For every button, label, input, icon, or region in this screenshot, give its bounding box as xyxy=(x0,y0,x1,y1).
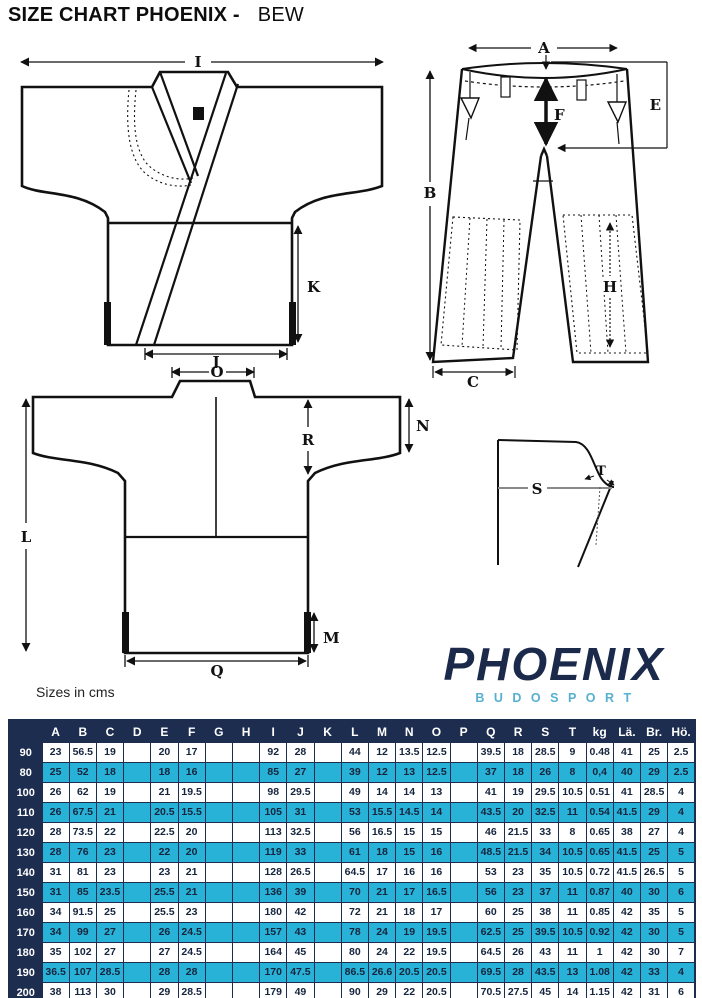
size-row-label: 150 xyxy=(9,883,42,903)
table-cell: 42 xyxy=(287,903,314,923)
table-cell: 91.5 xyxy=(69,903,96,923)
table-cell: 1.15 xyxy=(586,983,613,998)
table-cell: 23 xyxy=(96,863,123,883)
table-cell: 80 xyxy=(341,943,368,963)
table-cell xyxy=(232,963,259,983)
table-cell: 14 xyxy=(423,803,450,823)
column-header: K xyxy=(314,720,341,743)
table-cell: 11 xyxy=(559,943,586,963)
table-cell: 29 xyxy=(368,983,395,998)
table-cell: 34 xyxy=(42,923,69,943)
table-cell: 33 xyxy=(287,843,314,863)
table-cell xyxy=(232,843,259,863)
table-cell xyxy=(450,763,477,783)
table-cell xyxy=(124,783,151,803)
table-cell xyxy=(450,883,477,903)
table-cell: 99 xyxy=(69,923,96,943)
table-cell xyxy=(205,763,232,783)
table-cell: 0,4 xyxy=(586,763,613,783)
table-cell: 19.5 xyxy=(423,943,450,963)
table-cell: 23 xyxy=(96,843,123,863)
table-cell: 14 xyxy=(368,783,395,803)
table-cell: 20.5 xyxy=(423,983,450,998)
table-cell: 43.5 xyxy=(532,963,559,983)
column-header: H xyxy=(232,720,259,743)
table-cell: 113 xyxy=(260,823,287,843)
column-header: C xyxy=(96,720,123,743)
table-cell: 19 xyxy=(96,743,123,763)
table-row: 1603491.52525.5231804272211817602538110.… xyxy=(9,903,695,923)
table-cell: 21 xyxy=(368,883,395,903)
table-cell: 27.5 xyxy=(504,983,531,998)
table-cell xyxy=(314,783,341,803)
table-row: 1703499272624.51574378241919.562.52539.5… xyxy=(9,923,695,943)
table-cell xyxy=(124,923,151,943)
table-cell: 21 xyxy=(178,863,205,883)
table-cell xyxy=(450,903,477,923)
table-cell: 39.5 xyxy=(532,923,559,943)
table-cell: 27 xyxy=(640,823,667,843)
measure-label-k: K xyxy=(307,278,321,296)
table-cell: 107 xyxy=(69,963,96,983)
column-header: Br. xyxy=(640,720,667,743)
table-cell: 41 xyxy=(613,743,640,763)
table-cell xyxy=(124,963,151,983)
table-cell: 19.5 xyxy=(423,923,450,943)
table-body: 902356.51920179228441213.512.539.51828.5… xyxy=(9,743,695,998)
brand-logo: PHOENIX BUDOSPORT xyxy=(408,641,700,705)
table-cell: 29 xyxy=(151,983,178,998)
table-cell xyxy=(124,983,151,998)
table-row: 802552181816852739121312.537182680,44029… xyxy=(9,763,695,783)
table-cell xyxy=(450,843,477,863)
table-cell: 29 xyxy=(640,803,667,823)
table-cell: 41 xyxy=(477,783,504,803)
table-cell xyxy=(314,923,341,943)
table-cell: 42 xyxy=(613,923,640,943)
table-cell: 92 xyxy=(260,743,287,763)
table-cell xyxy=(124,943,151,963)
table-row: 150318523.525.5211363970211716.556233711… xyxy=(9,883,695,903)
table-cell: 38 xyxy=(42,983,69,998)
table-cell: 30 xyxy=(640,943,667,963)
table-cell: 31 xyxy=(640,983,667,998)
table-cell: 61 xyxy=(341,843,368,863)
measure-label-t: T xyxy=(596,464,606,479)
table-cell: 17 xyxy=(396,883,423,903)
table-cell: 62 xyxy=(69,783,96,803)
table-row: 1002662192119.59829.549141413411929.510.… xyxy=(9,783,695,803)
table-cell: 13 xyxy=(559,963,586,983)
table-cell xyxy=(205,783,232,803)
table-cell: 136 xyxy=(260,883,287,903)
table-cell: 20.5 xyxy=(151,803,178,823)
table-cell: 4 xyxy=(668,803,695,823)
table-cell: 28.5 xyxy=(532,743,559,763)
table-cell: 15.5 xyxy=(368,803,395,823)
table-cell: 56.5 xyxy=(69,743,96,763)
table-cell: 41.5 xyxy=(613,843,640,863)
table-cell: 28 xyxy=(287,743,314,763)
table-cell: 21.5 xyxy=(504,823,531,843)
table-cell: 14.5 xyxy=(396,803,423,823)
table-cell xyxy=(205,863,232,883)
table-cell: 32.5 xyxy=(287,823,314,843)
table-cell: 56 xyxy=(477,883,504,903)
header-row: ABCDEFGHIJKLMNOPQRSTkgLä.Br.Hö. xyxy=(9,720,695,743)
table-cell: 16 xyxy=(178,763,205,783)
table-cell xyxy=(314,883,341,903)
table-cell: 15.5 xyxy=(178,803,205,823)
table-cell xyxy=(314,903,341,923)
table-cell: 12 xyxy=(368,763,395,783)
table-cell: 15 xyxy=(396,843,423,863)
table-cell: 23 xyxy=(504,863,531,883)
measure-label-r: R xyxy=(302,431,315,449)
table-cell: 12 xyxy=(368,743,395,763)
column-header: A xyxy=(42,720,69,743)
table-cell: 27 xyxy=(151,943,178,963)
table-cell: 28 xyxy=(42,843,69,863)
table-cell xyxy=(232,923,259,943)
table-row: 140318123232112826.564.517161653233510.5… xyxy=(9,863,695,883)
table-cell: 29.5 xyxy=(532,783,559,803)
table-cell: 60 xyxy=(477,903,504,923)
size-row-label: 140 xyxy=(9,863,42,883)
table-cell: 26 xyxy=(504,943,531,963)
table-cell: 70 xyxy=(341,883,368,903)
table-cell: 25 xyxy=(96,903,123,923)
column-header: S xyxy=(532,720,559,743)
size-row-label: 190 xyxy=(9,963,42,983)
table-cell xyxy=(314,803,341,823)
brand-subtitle: BUDOSPORT xyxy=(416,691,700,705)
table-cell: 15 xyxy=(423,823,450,843)
table-cell: 38 xyxy=(532,903,559,923)
table-cell: 26 xyxy=(532,763,559,783)
measure-label-l: L xyxy=(21,528,32,546)
column-header: F xyxy=(178,720,205,743)
column-header: kg xyxy=(586,720,613,743)
table-cell: 43 xyxy=(532,943,559,963)
table-cell: 78 xyxy=(341,923,368,943)
table-cell: 17 xyxy=(178,743,205,763)
table-row: 902356.51920179228441213.512.539.51828.5… xyxy=(9,743,695,763)
table-cell: 62.5 xyxy=(477,923,504,943)
table-cell: 28.5 xyxy=(96,963,123,983)
table-cell: 4 xyxy=(668,963,695,983)
table-cell: 35 xyxy=(532,863,559,883)
table-cell: 16.5 xyxy=(423,883,450,903)
sizes-note: Sizes in cms xyxy=(36,684,115,700)
table-cell: 26.5 xyxy=(287,863,314,883)
table-cell xyxy=(232,903,259,923)
measure-label-c: C xyxy=(467,373,479,390)
table-cell: 28 xyxy=(504,963,531,983)
column-header: T xyxy=(559,720,586,743)
column-header xyxy=(9,720,42,743)
table-cell: 24 xyxy=(368,943,395,963)
table-cell: 70.5 xyxy=(477,983,504,998)
table-cell: 23 xyxy=(178,903,205,923)
column-header: O xyxy=(423,720,450,743)
table-cell: 20.5 xyxy=(423,963,450,983)
table-cell: 27 xyxy=(287,763,314,783)
table-cell: 25 xyxy=(640,743,667,763)
table-cell xyxy=(450,863,477,883)
table-cell: 13 xyxy=(396,763,423,783)
table-cell: 47.5 xyxy=(287,963,314,983)
table-row: 20038113302928.51794990292220.570.527.54… xyxy=(9,983,695,998)
table-cell: 11 xyxy=(559,883,586,903)
table-cell: 10.5 xyxy=(559,783,586,803)
table-cell xyxy=(450,823,477,843)
table-cell: 43 xyxy=(287,923,314,943)
table-cell: 42 xyxy=(613,943,640,963)
table-row: 19036.510728.5282817047.586.526.620.520.… xyxy=(9,963,695,983)
table-cell: 21 xyxy=(96,803,123,823)
table-cell: 86.5 xyxy=(341,963,368,983)
size-row-label: 80 xyxy=(9,763,42,783)
table-cell xyxy=(314,743,341,763)
table-cell xyxy=(450,963,477,983)
table-cell: 39 xyxy=(341,763,368,783)
table-cell: 45 xyxy=(532,983,559,998)
size-row-label: 90 xyxy=(9,743,42,763)
table-cell: 0.48 xyxy=(586,743,613,763)
table-cell: 41.5 xyxy=(613,863,640,883)
table-cell: 19 xyxy=(96,783,123,803)
size-row-label: 160 xyxy=(9,903,42,923)
table-cell: 16.5 xyxy=(368,823,395,843)
table-cell: 33 xyxy=(532,823,559,843)
table-cell: 5 xyxy=(668,903,695,923)
table-cell: 102 xyxy=(69,943,96,963)
table-cell: 24.5 xyxy=(178,923,205,943)
column-header: P xyxy=(450,720,477,743)
table-cell: 24.5 xyxy=(178,943,205,963)
table-cell: 31 xyxy=(287,803,314,823)
table-cell: 16 xyxy=(423,843,450,863)
table-cell xyxy=(124,743,151,763)
table-cell xyxy=(314,763,341,783)
table-cell: 90 xyxy=(341,983,368,998)
table-cell: 32.5 xyxy=(532,803,559,823)
table-cell: 7 xyxy=(668,943,695,963)
table-cell xyxy=(232,783,259,803)
table-cell: 28 xyxy=(151,963,178,983)
table-cell: 23.5 xyxy=(96,883,123,903)
table-cell: 53 xyxy=(477,863,504,883)
table-cell: 81 xyxy=(69,863,96,883)
measure-label-q: Q xyxy=(210,662,223,680)
table-cell: 0.85 xyxy=(586,903,613,923)
size-row-label: 100 xyxy=(9,783,42,803)
table-cell: 64.5 xyxy=(341,863,368,883)
table-cell xyxy=(205,963,232,983)
table-cell: 157 xyxy=(260,923,287,943)
table-cell xyxy=(314,943,341,963)
measure-label-b: B xyxy=(424,184,437,202)
table-cell: 26 xyxy=(151,923,178,943)
table-cell: 4 xyxy=(668,823,695,843)
table-cell xyxy=(205,743,232,763)
table-cell xyxy=(314,843,341,863)
table-cell xyxy=(124,863,151,883)
table-cell: 25 xyxy=(640,843,667,863)
size-row-label: 130 xyxy=(9,843,42,863)
table-cell: 30 xyxy=(96,983,123,998)
size-row-label: 170 xyxy=(9,923,42,943)
table-cell: 31 xyxy=(42,883,69,903)
page-title: SIZE CHART PHOENIX -BEW xyxy=(8,4,304,27)
table-cell: 11 xyxy=(559,803,586,823)
size-chart-page: SIZE CHART PHOENIX -BEW xyxy=(0,0,702,998)
table-cell: 40 xyxy=(613,883,640,903)
table-cell: 18 xyxy=(504,763,531,783)
table-cell: 33 xyxy=(640,963,667,983)
table-cell: 14 xyxy=(396,783,423,803)
table-cell: 85 xyxy=(260,763,287,783)
table-cell: 28.5 xyxy=(178,983,205,998)
column-header: Q xyxy=(477,720,504,743)
table-cell: 49 xyxy=(341,783,368,803)
table-cell: 18 xyxy=(396,903,423,923)
table-cell: 0.92 xyxy=(586,923,613,943)
table-cell: 67.5 xyxy=(69,803,96,823)
table-cell: 164 xyxy=(260,943,287,963)
table-cell: 22 xyxy=(396,943,423,963)
table-cell: 2.5 xyxy=(668,743,695,763)
table-row: 1202873.52222.52011332.55616.515154621.5… xyxy=(9,823,695,843)
table-cell xyxy=(314,863,341,883)
table-cell: 42 xyxy=(613,983,640,998)
table-cell: 4 xyxy=(668,783,695,803)
table-cell: 22 xyxy=(396,983,423,998)
column-header: N xyxy=(396,720,423,743)
table-cell: 26.5 xyxy=(640,863,667,883)
table-cell: 17 xyxy=(368,863,395,883)
table-cell: 20 xyxy=(151,743,178,763)
measure-label-s: S xyxy=(532,480,543,498)
table-cell: 1.08 xyxy=(586,963,613,983)
table-cell: 26.6 xyxy=(368,963,395,983)
table-cell: 64.5 xyxy=(477,943,504,963)
table-cell: 6 xyxy=(668,883,695,903)
table-cell: 19 xyxy=(504,783,531,803)
table-cell xyxy=(124,883,151,903)
table-cell: 20 xyxy=(504,803,531,823)
table-cell: 19 xyxy=(396,923,423,943)
table-cell: 25 xyxy=(504,923,531,943)
table-cell xyxy=(232,743,259,763)
table-cell: 170 xyxy=(260,963,287,983)
table-cell: 10.5 xyxy=(559,923,586,943)
table-cell: 20.5 xyxy=(396,963,423,983)
column-header: D xyxy=(124,720,151,743)
table-cell: 17 xyxy=(423,903,450,923)
table-cell: 23 xyxy=(42,743,69,763)
table-cell: 13 xyxy=(423,783,450,803)
table-cell: 0.54 xyxy=(586,803,613,823)
table-cell: 128 xyxy=(260,863,287,883)
table-cell: 22.5 xyxy=(151,823,178,843)
table-cell: 11 xyxy=(559,903,586,923)
table-cell: 0.65 xyxy=(586,843,613,863)
table-cell: 22 xyxy=(151,843,178,863)
table-cell xyxy=(205,923,232,943)
column-header: J xyxy=(287,720,314,743)
table-cell: 0.65 xyxy=(586,823,613,843)
table-cell: 16 xyxy=(423,863,450,883)
brand-patch xyxy=(193,107,204,120)
table-cell xyxy=(232,883,259,903)
table-cell: 25.5 xyxy=(151,883,178,903)
table-cell: 56 xyxy=(341,823,368,843)
table-cell: 10.5 xyxy=(559,863,586,883)
brand-name: PHOENIX xyxy=(408,641,700,687)
table-cell: 85 xyxy=(69,883,96,903)
column-header: Hö. xyxy=(668,720,695,743)
column-header: R xyxy=(504,720,531,743)
table-cell: 34 xyxy=(532,843,559,863)
table-cell xyxy=(232,943,259,963)
table-cell: 45 xyxy=(287,943,314,963)
table-cell: 18 xyxy=(96,763,123,783)
table-cell: 113 xyxy=(69,983,96,998)
table-cell: 21 xyxy=(368,903,395,923)
table-cell: 41 xyxy=(613,783,640,803)
table-cell: 29 xyxy=(640,763,667,783)
table-row: 18035102272724.51644580242219.564.526431… xyxy=(9,943,695,963)
table-cell: 9 xyxy=(559,743,586,763)
table-cell: 12.5 xyxy=(423,743,450,763)
table-cell: 21 xyxy=(151,783,178,803)
column-header: I xyxy=(260,720,287,743)
table-cell: 37 xyxy=(532,883,559,903)
table-cell xyxy=(450,743,477,763)
measure-label-f: F xyxy=(554,106,565,124)
table-cell: 0.87 xyxy=(586,883,613,903)
column-header: B xyxy=(69,720,96,743)
table-cell: 28 xyxy=(178,963,205,983)
title-main: SIZE CHART PHOENIX - xyxy=(8,4,240,26)
table-cell: 6 xyxy=(668,983,695,998)
table-cell: 0.72 xyxy=(586,863,613,883)
table-cell xyxy=(124,903,151,923)
table-cell xyxy=(232,823,259,843)
table-cell: 25 xyxy=(504,903,531,923)
table-cell: 44 xyxy=(341,743,368,763)
measure-label-m: M xyxy=(323,629,340,647)
table-cell: 53 xyxy=(341,803,368,823)
table-cell xyxy=(450,783,477,803)
table-cell xyxy=(232,763,259,783)
table-cell: 23 xyxy=(504,883,531,903)
table-cell: 15 xyxy=(396,823,423,843)
table-cell: 5 xyxy=(668,923,695,943)
table-cell xyxy=(450,923,477,943)
table-cell: 30 xyxy=(640,883,667,903)
table-cell xyxy=(232,863,259,883)
column-header: G xyxy=(205,720,232,743)
table-cell: 39 xyxy=(287,883,314,903)
table-cell: 12.5 xyxy=(423,763,450,783)
table-cell: 16 xyxy=(396,863,423,883)
table-cell: 76 xyxy=(69,843,96,863)
table-cell xyxy=(232,803,259,823)
collar-detail-diagram: S T xyxy=(480,425,665,600)
